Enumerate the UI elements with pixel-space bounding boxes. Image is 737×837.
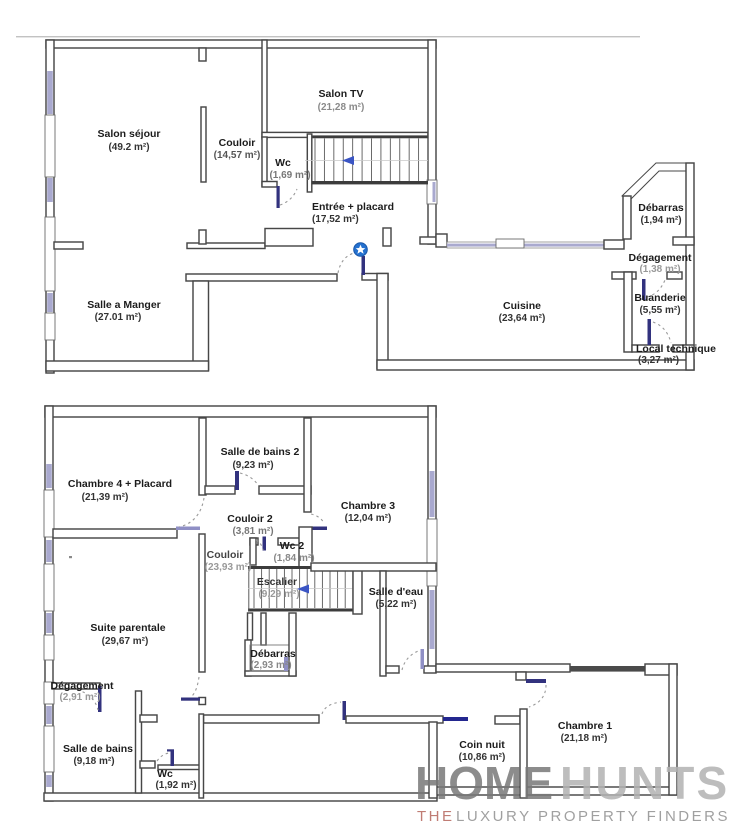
svg-text:Salon TV: Salon TV <box>319 88 364 100</box>
svg-text:Salon séjour: Salon séjour <box>97 128 160 140</box>
svg-text:(29,67 m²): (29,67 m²) <box>102 636 149 647</box>
svg-text:(12,04 m²): (12,04 m²) <box>345 513 392 524</box>
svg-text:THE: THE <box>417 808 455 825</box>
svg-text:Buanderie: Buanderie <box>634 292 686 304</box>
svg-text:(9,23 m²): (9,23 m²) <box>232 460 273 471</box>
svg-text:(2,93 m²): (2,93 m²) <box>250 660 291 671</box>
svg-text:Escalier: Escalier <box>257 576 297 588</box>
svg-text:(1,94 m²): (1,94 m²) <box>640 215 681 226</box>
svg-text:Wc: Wc <box>275 157 291 169</box>
svg-text:(27.01 m²): (27.01 m²) <box>95 312 142 323</box>
svg-text:(3,27 m²): (3,27 m²) <box>638 355 679 366</box>
svg-text:(1,84 m²): (1,84 m²) <box>273 553 314 564</box>
svg-text:(5,22 m²): (5,22 m²) <box>375 599 416 610</box>
svg-text:Chambre 4 + Placard: Chambre 4 + Placard <box>68 478 172 490</box>
svg-text:Dégagement: Dégagement <box>628 252 692 264</box>
svg-text:Suite parentale: Suite parentale <box>90 622 165 634</box>
svg-text:Entrée + placard: Entrée + placard <box>312 201 394 213</box>
svg-text:Chambre 1: Chambre 1 <box>558 720 612 732</box>
svg-text:Salle de bains: Salle de bains <box>63 743 133 755</box>
svg-text:(23,93 m²): (23,93 m²) <box>205 562 252 573</box>
svg-text:Wc 2: Wc 2 <box>280 540 305 552</box>
svg-text:HOME: HOME <box>415 757 553 809</box>
svg-text:Dégagement: Dégagement <box>50 680 114 692</box>
svg-text:Débarras: Débarras <box>250 648 296 660</box>
svg-text:Local technique: Local technique <box>636 343 716 355</box>
svg-text:Salle a Manger: Salle a Manger <box>87 299 161 311</box>
svg-text:Couloir 2: Couloir 2 <box>227 513 273 525</box>
svg-text:(21,39 m²): (21,39 m²) <box>82 492 129 503</box>
svg-text:Wc: Wc <box>157 768 173 780</box>
svg-text:Chambre 3: Chambre 3 <box>341 500 395 512</box>
svg-text:Cuisine: Cuisine <box>503 300 541 312</box>
svg-text:(23,64 m²): (23,64 m²) <box>499 313 546 324</box>
svg-text:Couloir: Couloir <box>207 549 244 561</box>
svg-text:(1,69 m²): (1,69 m²) <box>269 170 310 181</box>
svg-text:Débarras: Débarras <box>638 202 684 214</box>
svg-text:(21,18 m²): (21,18 m²) <box>561 733 608 744</box>
svg-text:HUNTS: HUNTS <box>560 757 729 809</box>
svg-text:(14,57 m²): (14,57 m²) <box>214 150 261 161</box>
svg-text:Salle de bains 2: Salle de bains 2 <box>221 446 300 458</box>
svg-text:(9,18 m²): (9,18 m²) <box>73 756 114 767</box>
svg-text:(17,52 m²): (17,52 m²) <box>312 214 359 225</box>
svg-text:(49.2 m²): (49.2 m²) <box>108 142 149 153</box>
svg-text:(9,29 m²): (9,29 m²) <box>258 589 299 600</box>
svg-text:(1,92 m²): (1,92 m²) <box>155 780 196 791</box>
svg-text:Couloir: Couloir <box>219 137 256 149</box>
svg-text:Coin nuit: Coin nuit <box>459 739 505 751</box>
svg-text:(5,55 m²): (5,55 m²) <box>639 305 680 316</box>
svg-text:(3,81 m²): (3,81 m²) <box>232 526 273 537</box>
svg-text:(21,28 m²): (21,28 m²) <box>318 102 365 113</box>
svg-text:(2,91 m²): (2,91 m²) <box>59 692 100 703</box>
svg-text:LUXURY PROPERTY FINDERS: LUXURY PROPERTY FINDERS <box>456 808 730 825</box>
svg-text:(1,38 m²): (1,38 m²) <box>639 264 680 275</box>
svg-text:Salle d'eau: Salle d'eau <box>369 586 423 598</box>
